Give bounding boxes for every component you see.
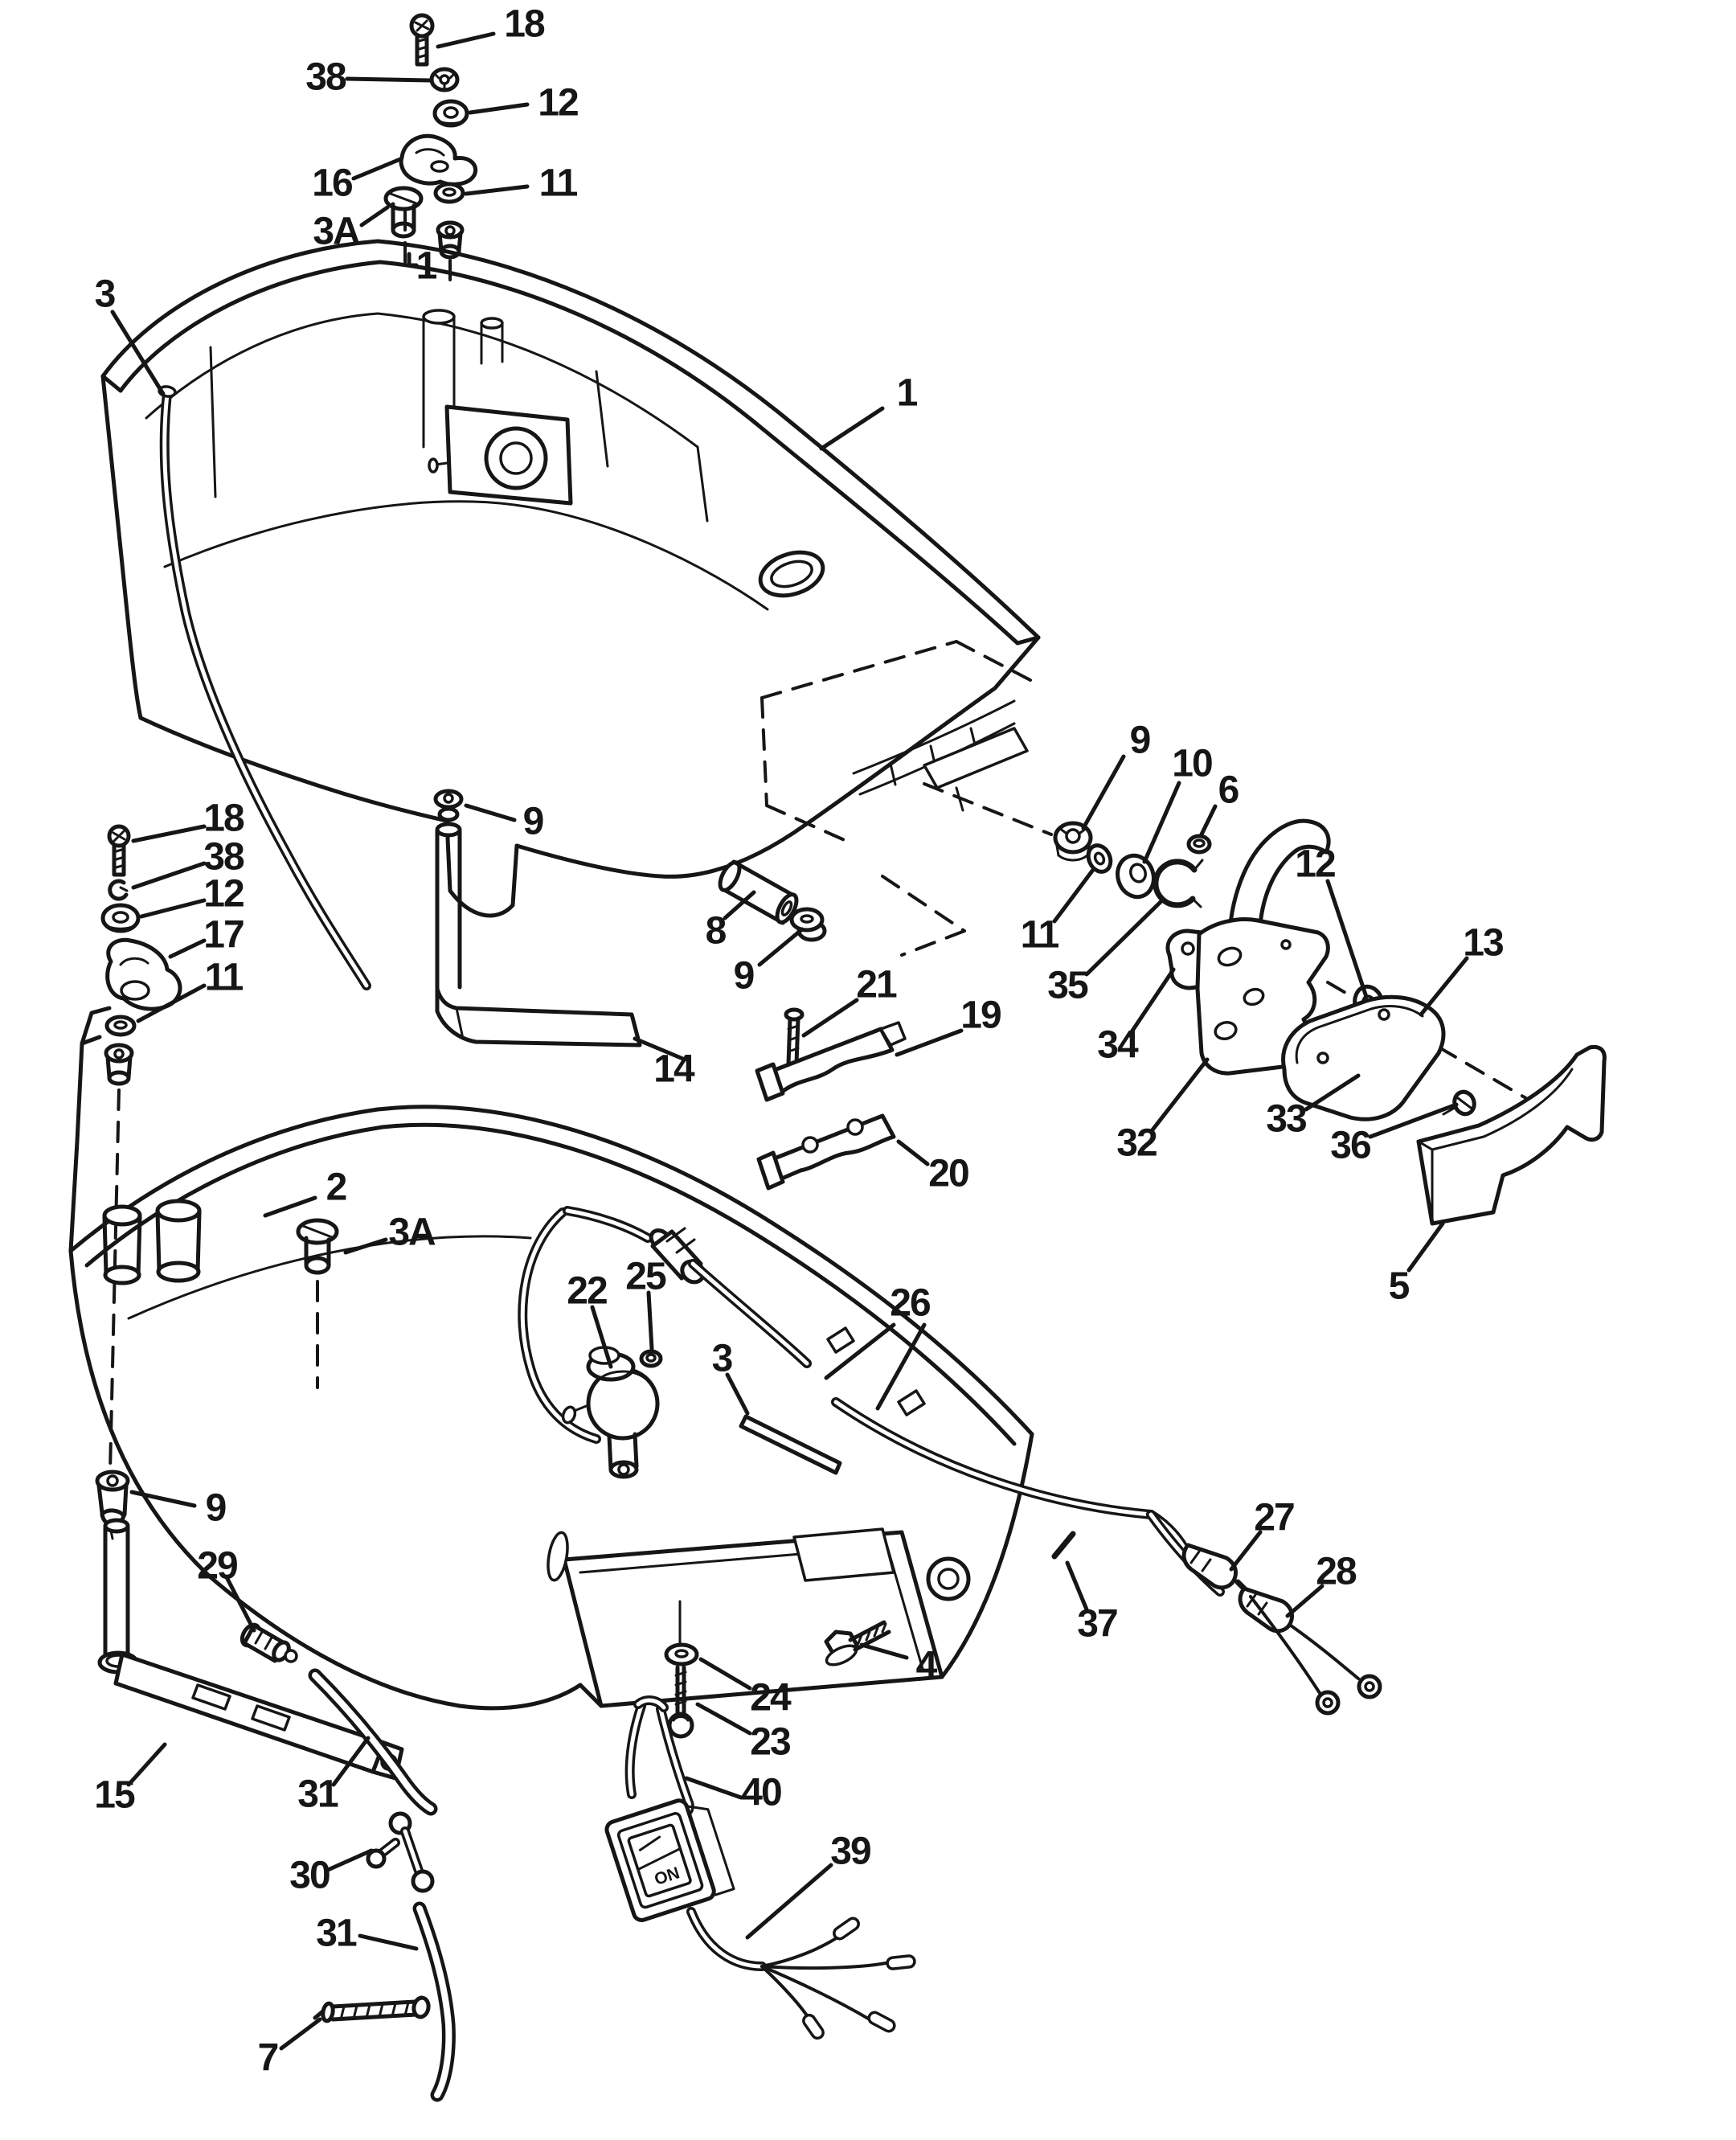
grommet-10 (1112, 851, 1159, 901)
callout-12-top: 12 (538, 82, 578, 125)
callout-5: 5 (1389, 1265, 1410, 1308)
callout-32: 32 (1116, 1122, 1157, 1165)
bullet-connector-27 (1184, 1545, 1251, 1595)
callout-13: 13 (1463, 922, 1503, 965)
pin-37 (1054, 1534, 1073, 1556)
callout-34: 34 (1097, 1024, 1139, 1067)
leader-line-2 (265, 1198, 315, 1216)
callout-20: 20 (928, 1153, 968, 1195)
callout-11-top: 11 (539, 162, 578, 205)
leader-line-35 (1087, 900, 1162, 974)
callout-29: 29 (197, 1545, 237, 1588)
callout-33: 33 (1266, 1098, 1306, 1141)
tee-fitting-30 (368, 1814, 432, 1891)
bullet-connector-28 (1240, 1589, 1292, 1631)
fitting-29 (239, 1621, 297, 1662)
left-screw-18 (109, 826, 129, 875)
leader-line-12-top (470, 105, 527, 113)
leader-line-3A-low (346, 1240, 386, 1252)
leader-line-31-low (360, 1936, 416, 1949)
callout-15: 15 (94, 1774, 135, 1817)
leader-line-15 (129, 1744, 165, 1785)
leader-line-38-left (133, 863, 204, 888)
parts-diagram: ON 112333A3A4567899991011111112121213141… (0, 0, 1736, 2140)
leader-line-17 (170, 941, 204, 957)
leader-line-40 (686, 1778, 741, 1798)
exploded-parts-diagram-page: ON 112333A3A4567899991011111112121213141… (0, 0, 1736, 2140)
callout-9-top: 9 (523, 801, 543, 843)
nut-6 (1189, 836, 1210, 852)
left-grommet-11 (107, 1017, 134, 1035)
callout-8: 8 (706, 910, 727, 953)
callout-3-mid: 3 (712, 1338, 732, 1380)
switch-wires-39 (762, 1917, 915, 2041)
callout-24: 24 (750, 1677, 792, 1720)
lower-screw-plug-3a (298, 1220, 337, 1273)
latch-alignment-dash-a (924, 784, 1051, 834)
screw-21 (786, 1010, 802, 1064)
callout-4: 4 (916, 1645, 938, 1687)
left-bracket-17 (108, 940, 180, 1009)
leader-line-9-low (132, 1492, 194, 1506)
leader-line-20 (899, 1142, 927, 1164)
leader-line-16 (354, 159, 400, 178)
leader-line-38-top (347, 79, 431, 80)
callout-31-low: 31 (316, 1912, 357, 1955)
leader-line-23 (698, 1704, 750, 1733)
callout-17: 17 (203, 914, 244, 957)
top-washer-38 (432, 69, 457, 90)
grommet-9-top (436, 791, 461, 820)
switch-39: ON (604, 1793, 762, 1966)
leader-line-7 (281, 2019, 320, 2048)
callout-7: 7 (258, 2037, 278, 2080)
callout-1-small: 1 (416, 245, 437, 288)
leader-line-3-mid (727, 1375, 747, 1413)
callout-27: 27 (1254, 1497, 1294, 1539)
left-well-plug (106, 1045, 132, 1084)
seal-strip-3-mid (741, 1416, 840, 1473)
leader-line-10 (1144, 783, 1179, 862)
callout-12-left: 12 (203, 873, 244, 916)
tube-bracket-14 (437, 824, 640, 1045)
leader-line-6 (1201, 806, 1215, 836)
callout-3-left: 3 (95, 273, 115, 316)
leader-line-12-right (1328, 881, 1366, 997)
top-grommet-11 (436, 184, 463, 202)
leader-line-9-right (1083, 756, 1124, 828)
seal-strip-3-left (158, 386, 366, 986)
left-clip-washer-38 (110, 881, 127, 899)
callout-39: 39 (830, 1830, 870, 1873)
top-bracket-16 (401, 136, 476, 184)
callout-30: 30 (289, 1855, 330, 1897)
latch-alignment-dash-b (882, 876, 964, 955)
leader-line-5 (1409, 1224, 1443, 1270)
callout-36: 36 (1330, 1125, 1370, 1167)
nut-25 (641, 1351, 661, 1366)
leader-line-11-top (466, 187, 527, 194)
callout-11-left: 11 (205, 957, 244, 999)
callout-11-right: 11 (1021, 914, 1059, 957)
leader-line-39 (747, 1865, 831, 1937)
leader-line-30 (328, 1851, 371, 1870)
callout-9-low: 9 (206, 1487, 226, 1530)
callout-2: 2 (326, 1166, 346, 1209)
callout-14: 14 (653, 1048, 695, 1091)
leader-line-32 (1151, 1060, 1207, 1132)
leader-line-3A-top (362, 207, 387, 225)
callout-35: 35 (1047, 965, 1088, 1007)
leader-line-11-right (1054, 870, 1093, 921)
callout-23: 23 (750, 1721, 790, 1764)
callout-38-left: 38 (203, 836, 244, 879)
callout-25: 25 (625, 1256, 666, 1298)
leader-line-9-top (466, 806, 514, 820)
leader-line-21 (804, 1000, 857, 1035)
callout-6: 6 (1218, 769, 1239, 812)
callout-40: 40 (741, 1772, 781, 1814)
leader-line-19 (897, 1031, 961, 1055)
callout-18-top: 18 (504, 3, 545, 46)
callout-3A-top: 3A (313, 211, 360, 253)
top-grommet-12 (435, 101, 467, 125)
callout-9-mid: 9 (734, 955, 754, 998)
callout-16: 16 (312, 162, 352, 205)
lower-cowl-part-2 (71, 1008, 1032, 1708)
callout-10: 10 (1172, 743, 1212, 785)
callout-18-left: 18 (203, 797, 244, 840)
leader-line-1 (821, 408, 882, 449)
leader-line-9-mid (759, 929, 802, 965)
callout-3A-low: 3A (388, 1211, 436, 1254)
callout-38-top: 38 (305, 56, 346, 99)
callout-28: 28 (1316, 1551, 1357, 1593)
left-grommet-12 (103, 905, 138, 931)
leader-line-12-left (141, 900, 204, 916)
callout-21: 21 (856, 964, 897, 1006)
callout-31-up: 31 (297, 1773, 338, 1816)
top-screw-18 (411, 15, 432, 64)
callout-1: 1 (897, 372, 918, 415)
cable-clamp-20 (759, 1116, 894, 1188)
callout-26: 26 (890, 1282, 930, 1325)
screw-36 (1443, 1089, 1477, 1117)
washer-24 (666, 1645, 697, 1664)
cable-clamp-19 (757, 1023, 905, 1100)
locknut-9-right (1055, 823, 1091, 860)
callout-9-right: 9 (1130, 719, 1150, 762)
callout-12-right: 12 (1295, 843, 1335, 886)
callout-37: 37 (1077, 1603, 1117, 1646)
screw-7 (315, 1997, 430, 2022)
callout-22: 22 (567, 1270, 607, 1313)
leader-line-18-top (438, 34, 493, 47)
leader-line-18-left (133, 826, 204, 841)
leader-line-13 (1421, 958, 1467, 1015)
callout-19: 19 (960, 994, 1001, 1037)
latch-cover-5 (1419, 1047, 1604, 1224)
leader-line-25 (649, 1293, 652, 1349)
